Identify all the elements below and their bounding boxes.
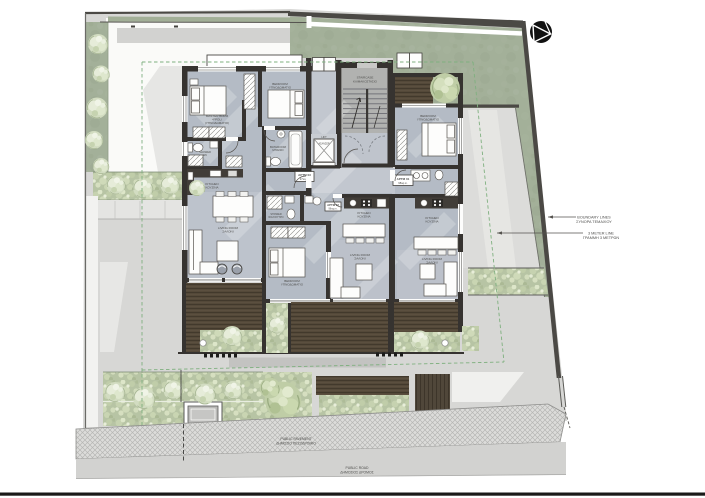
svg-text:APTM 01: APTM 01 — [397, 177, 410, 181]
svg-text:PUBLIC PAVEMENT: PUBLIC PAVEMENT — [280, 437, 311, 441]
svg-text:ΣΥΝΟΡΑ ΤΕΜΑΧΙΟΥ: ΣΥΝΟΡΑ ΤΕΜΑΧΙΟΥ — [576, 220, 612, 224]
svg-text:ΜΠΑΝΙΟ: ΜΠΑΝΙΟ — [272, 148, 284, 152]
svg-text:ΥΠΝΟΔΩΜΑΤΙΟ: ΥΠΝΟΔΩΜΑΤΙΟ — [269, 86, 292, 90]
svg-text:WC/ΛΟΥΤΡΟ: WC/ΛΟΥΤΡΟ — [268, 216, 283, 219]
svg-text:ΣΑΛΟΝΙ: ΣΑΛΟΝΙ — [354, 257, 365, 261]
svg-text:ΔΗΜΟΣΙΟ ΠΕΖΟΔΡΟΜΙΟ: ΔΗΜΟΣΙΟ ΠΕΖΟΔΡΟΜΙΟ — [276, 442, 316, 446]
svg-text:ΔΗΜΟΣΙΟΣ ΔΡΟΜΟΣ: ΔΗΜΟΣΙΟΣ ΔΡΟΜΟΣ — [340, 471, 373, 475]
svg-text:ΓΡΑΜΜΗ 3 ΜΕΤΡΩΝ: ΓΡΑΜΜΗ 3 ΜΕΤΡΩΝ — [583, 236, 620, 240]
svg-text:APTM 02: APTM 02 — [327, 203, 339, 207]
svg-text:LIFT: LIFT — [321, 135, 327, 139]
svg-text:3 METER LINE: 3 METER LINE — [588, 232, 614, 236]
svg-text:96sq.m.: 96sq.m. — [329, 208, 338, 211]
svg-text:ΥΠΝΟΔΩΜΑΤΙΟ: ΥΠΝΟΔΩΜΑΤΙΟ — [281, 283, 304, 287]
svg-text:98sq.m.: 98sq.m. — [398, 181, 408, 185]
svg-text:BOUNDARY LINES: BOUNDARY LINES — [577, 216, 611, 220]
svg-text:WC: WC — [203, 153, 207, 157]
svg-text:ΣΑΛΟΝΙ: ΣΑΛΟΝΙ — [222, 230, 233, 234]
svg-text:(ΥΠΝΟΔΩΜΑΤΙΟ): (ΥΠΝΟΔΩΜΑΤΙΟ) — [205, 121, 229, 125]
svg-text:ΚΛΙΜΑΚΟΣΤΑΣΙΟ: ΚΛΙΜΑΚΟΣΤΑΣΙΟ — [353, 80, 378, 84]
svg-text:ΥΠΝΟΔΩΜΑΤΙΟ: ΥΠΝΟΔΩΜΑΤΙΟ — [417, 118, 440, 122]
svg-text:ΑΣΑΝΣΕΡ: ΑΣΑΝΣΕΡ — [318, 143, 329, 146]
svg-text:ΚΟΥΖΙΝΑ: ΚΟΥΖΙΝΑ — [358, 215, 371, 219]
svg-text:PUBLIC ROAD: PUBLIC ROAD — [346, 466, 370, 470]
svg-text:ΚΟΥΖΙΝΑ: ΚΟΥΖΙΝΑ — [426, 220, 439, 224]
svg-text:ΚΟΥΖΙΝΑ: ΚΟΥΖΙΝΑ — [206, 186, 219, 190]
